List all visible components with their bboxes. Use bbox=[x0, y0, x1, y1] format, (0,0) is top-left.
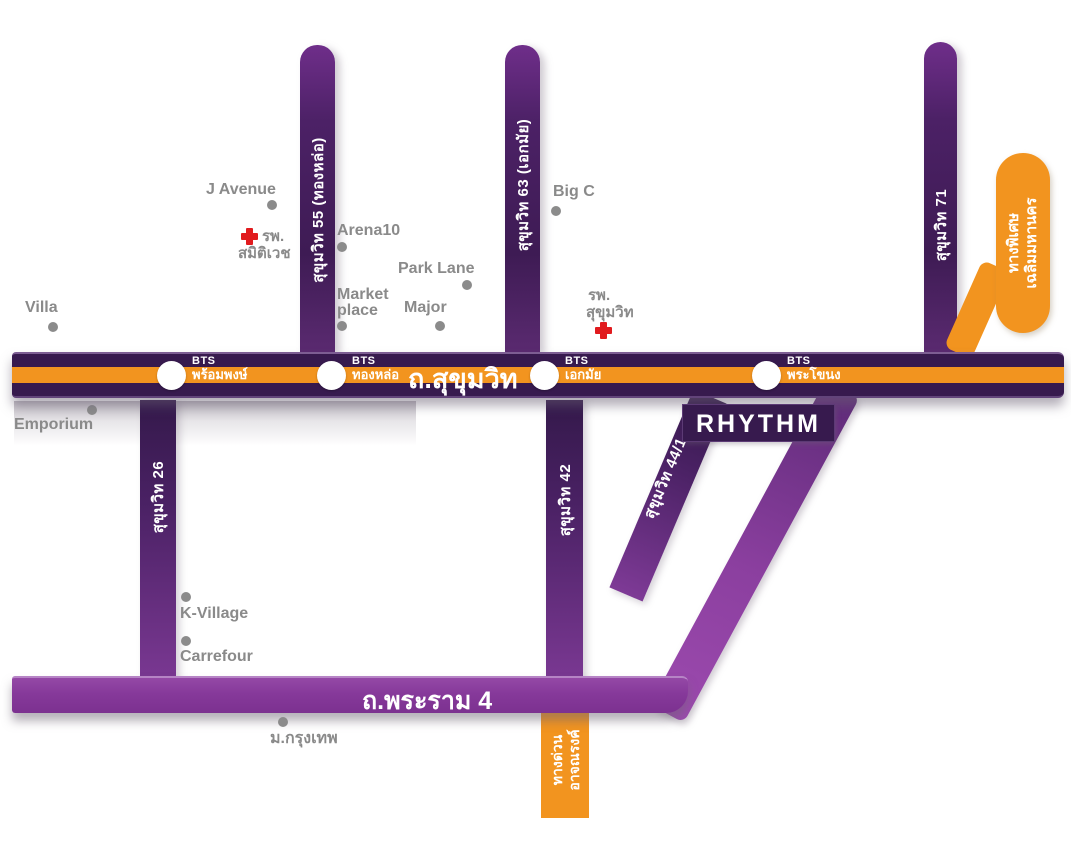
road-soi-26 bbox=[140, 400, 176, 695]
soi-42-label: สุขุมวิท 42 bbox=[553, 464, 577, 536]
hospital-cross-icon bbox=[595, 322, 612, 339]
bts-station-label: BTS ทองหล่อ bbox=[352, 356, 399, 381]
landmark-major: Major bbox=[404, 300, 447, 316]
bts-station-marker bbox=[530, 361, 559, 390]
landmark-dot-major bbox=[435, 321, 445, 331]
soi-26-label: สุขุมวิท 26 bbox=[146, 461, 170, 533]
landmark-dot-bangkok-university bbox=[278, 717, 288, 727]
sukhumvit-road-label: ถ.สุขุมวิท bbox=[408, 357, 518, 400]
hospital-sukhumvit-line1: รพ. bbox=[588, 287, 634, 304]
landmark-j-avenue: J Avenue bbox=[206, 182, 276, 198]
bts-station-label: BTS พระโขนง bbox=[787, 356, 841, 381]
bts-prefix: BTS bbox=[787, 356, 841, 368]
bts-station-phra-khanong: BTS พระโขนง bbox=[752, 361, 781, 390]
landmark-bangkok-university: ม.กรุงเทพ bbox=[270, 731, 338, 747]
bts-station-label: BTS พร้อมพงษ์ bbox=[192, 356, 247, 381]
bangkok-location-map: ทางพิเศษ เฉลิมมหานคร ถ.สุขุมวิท ถ.พระราม… bbox=[0, 0, 1071, 849]
expressway-label-line2: เฉลิมมหานคร bbox=[1023, 198, 1041, 289]
landmark-dot-arena10 bbox=[337, 242, 347, 252]
hospital-cross-icon bbox=[241, 228, 258, 245]
bts-station-name: พระโขนง bbox=[787, 368, 841, 382]
expressway-at-narong-line2: อาจณรงค์ bbox=[566, 729, 583, 790]
bts-station-name: พร้อมพงษ์ bbox=[192, 368, 247, 382]
landmark-dot-market-place bbox=[337, 321, 347, 331]
landmark-k-village: K-Village bbox=[180, 606, 248, 622]
road-rama-4 bbox=[12, 676, 688, 713]
landmark-dot-villa bbox=[48, 322, 58, 332]
expressway-at-narong-line1: ทางด่วน bbox=[549, 729, 566, 790]
bts-station-ekkamai: BTS เอกมัย bbox=[530, 361, 559, 390]
expressway-chalerm-mahanakorn-label: ทางพิเศษ เฉลิมมหานคร bbox=[1005, 198, 1041, 289]
rama4-road-label: ถ.พระราม 4 bbox=[362, 681, 492, 721]
bts-station-label: BTS เอกมัย bbox=[565, 356, 601, 381]
landmark-arena10: Arena10 bbox=[337, 223, 400, 239]
landmark-market-place-line1: Market bbox=[337, 287, 389, 303]
landmark-dot-big-c bbox=[551, 206, 561, 216]
landmark-dot-k-village bbox=[181, 592, 191, 602]
landmark-dot-carrefour bbox=[181, 636, 191, 646]
landmark-villa: Villa bbox=[25, 300, 58, 316]
landmark-dot-j-avenue bbox=[267, 200, 277, 210]
hospital-samitivej: รพ. สมิติเวช bbox=[262, 228, 291, 263]
hospital-sukhumvit-line2: สุขุมวิท bbox=[586, 304, 634, 321]
project-rhythm-badge: RHYTHM bbox=[683, 405, 834, 441]
landmark-emporium: Emporium bbox=[14, 417, 93, 433]
hospital-sukhumvit: รพ. สุขุมวิท bbox=[588, 287, 634, 322]
bts-station-phrom-phong: BTS พร้อมพงษ์ bbox=[157, 361, 186, 390]
bts-station-name: ทองหล่อ bbox=[352, 368, 399, 382]
soi-55-label: สุขุมวิท 55 (ทองหล่อ) bbox=[306, 137, 330, 282]
landmark-dot-park-lane bbox=[462, 280, 472, 290]
hospital-samitivej-line1: รพ. bbox=[262, 228, 291, 245]
bts-prefix: BTS bbox=[352, 356, 399, 368]
soi-71-label: สุขุมวิท 71 bbox=[929, 189, 953, 261]
road-soi-42 bbox=[546, 400, 583, 695]
bts-station-name: เอกมัย bbox=[565, 368, 601, 382]
hospital-samitivej-line2: สมิติเวช bbox=[238, 245, 291, 262]
expressway-label-line1: ทางพิเศษ bbox=[1005, 198, 1023, 289]
bts-prefix: BTS bbox=[192, 356, 247, 368]
landmark-market-place-line2: place bbox=[337, 303, 389, 319]
bts-station-marker bbox=[752, 361, 781, 390]
landmark-market-place: Market place bbox=[337, 287, 389, 319]
bts-station-marker bbox=[157, 361, 186, 390]
bts-prefix: BTS bbox=[565, 356, 601, 368]
landmark-carrefour: Carrefour bbox=[180, 649, 253, 665]
landmark-big-c: Big C bbox=[553, 184, 595, 200]
expressway-at-narong-label: ทางด่วน อาจณรงค์ bbox=[549, 729, 583, 790]
bts-station-marker bbox=[317, 361, 346, 390]
landmark-park-lane: Park Lane bbox=[398, 261, 474, 277]
landmark-dot-emporium bbox=[87, 405, 97, 415]
soi-63-label: สุขุมวิท 63 (เอกมัย) bbox=[511, 119, 535, 252]
bts-station-thong-lo: BTS ทองหล่อ bbox=[317, 361, 346, 390]
